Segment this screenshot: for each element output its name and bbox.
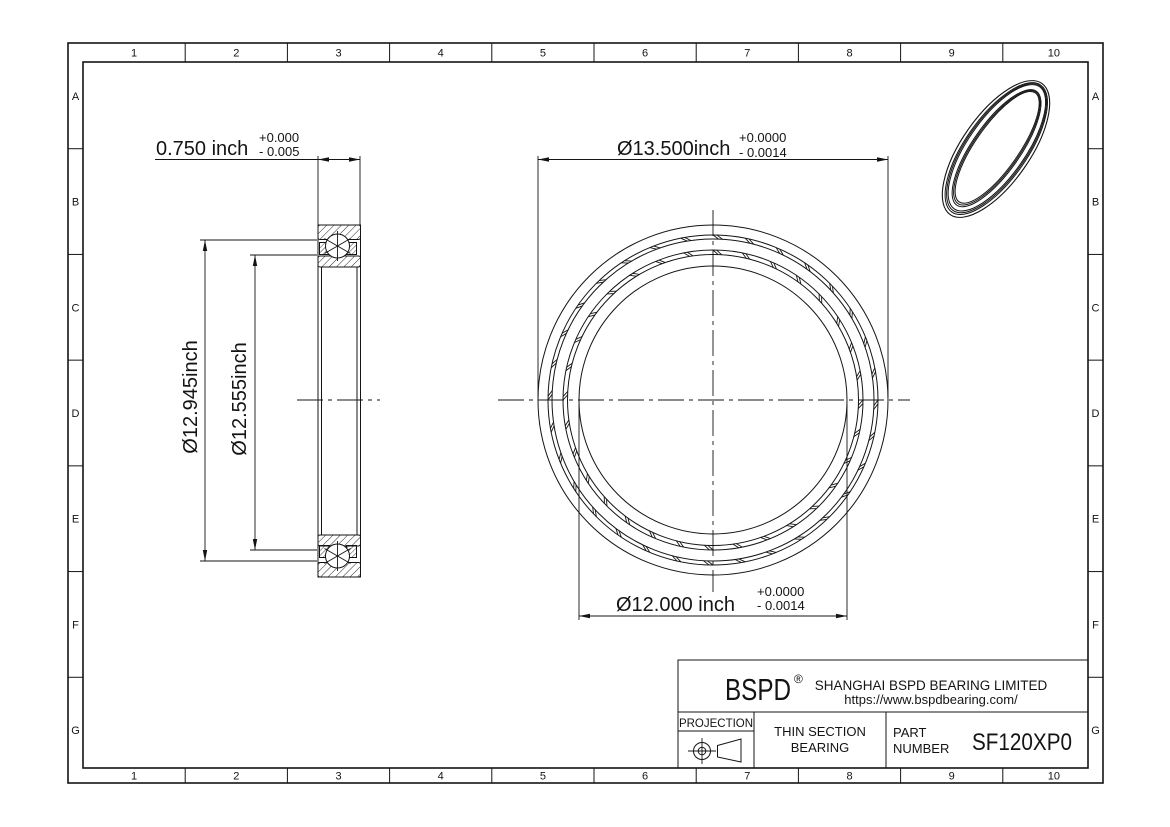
grid-row-label: G <box>1091 725 1100 737</box>
grid-row-label: A <box>72 91 80 103</box>
part-number-value: SF120XP0 <box>972 729 1072 756</box>
grid-column-label: 7 <box>744 771 750 783</box>
drawing-sheet: 1122334455667788991010AABBCCDDEEFFGG <box>0 0 1170 827</box>
part-label-line2: NUMBER <box>893 741 949 756</box>
dim-outer-race-value: Ø12.945inch <box>180 340 202 453</box>
grid-column-label: 2 <box>233 771 239 783</box>
grid-row-label: B <box>1092 197 1099 209</box>
dim-od-value: Ø13.500inch <box>617 138 730 160</box>
grid-column-label: 5 <box>540 771 546 783</box>
grid-column-label: 4 <box>438 48 444 60</box>
drawing-canvas: 1122334455667788991010AABBCCDDEEFFGG <box>0 0 1170 827</box>
dim-width-tol-minus: - 0.005 <box>259 144 299 159</box>
grid-column-label: 6 <box>642 48 648 60</box>
registered-trademark-symbol: ® <box>794 672 803 686</box>
company-logo: BSPD <box>725 672 791 707</box>
grid-column-label: 8 <box>846 48 852 60</box>
grid-column-label: 3 <box>335 48 341 60</box>
product-name-line1: THIN SECTION <box>774 724 866 739</box>
grid-column-label: 9 <box>949 48 955 60</box>
grid-column-label: 9 <box>949 771 955 783</box>
grid-column-label: 8 <box>846 771 852 783</box>
grid-row-label: D <box>72 408 80 420</box>
grid-row-label: E <box>72 514 79 526</box>
grid-column-label: 2 <box>233 48 239 60</box>
grid-row-label: A <box>1092 91 1100 103</box>
grid-row-label: D <box>1092 408 1100 420</box>
dim-bore-tol-minus: - 0.0014 <box>757 598 805 613</box>
grid-column-label: 3 <box>335 771 341 783</box>
dim-inner-race-value: Ø12.555inch <box>229 342 251 455</box>
grid-column-label: 1 <box>131 771 137 783</box>
grid-row-label: G <box>71 725 80 737</box>
grid-row-label: E <box>1092 514 1099 526</box>
grid-column-label: 1 <box>131 48 137 60</box>
grid-row-label: C <box>1092 302 1100 314</box>
grid-column-label: 10 <box>1048 48 1060 60</box>
dim-width-tol-plus: +0.000 <box>259 130 299 145</box>
grid-row-label: F <box>72 619 79 631</box>
company-website: https://www.bspdbearing.com/ <box>844 692 1018 707</box>
grid-row-label: B <box>72 197 79 209</box>
part-label-line1: PART <box>893 725 927 740</box>
dim-bore-tol-plus: +0.0000 <box>757 584 804 599</box>
dim-bore-value: Ø12.000 inch <box>616 594 735 616</box>
grid-column-label: 4 <box>438 771 444 783</box>
dim-od-tol-plus: +0.0000 <box>739 130 786 145</box>
grid-column-label: 10 <box>1048 771 1060 783</box>
grid-column-label: 6 <box>642 771 648 783</box>
dim-od-tol-minus: - 0.0014 <box>739 145 787 160</box>
grid-column-label: 5 <box>540 48 546 60</box>
product-name-line2: BEARING <box>791 740 850 755</box>
grid-column-label: 7 <box>744 48 750 60</box>
projection-label: PROJECTION <box>679 718 753 730</box>
company-name: SHANGHAI BSPD BEARING LIMITED <box>815 678 1048 693</box>
grid-row-label: C <box>72 302 80 314</box>
dim-width-value: 0.750 inch <box>156 138 248 160</box>
grid-row-label: F <box>1092 619 1099 631</box>
